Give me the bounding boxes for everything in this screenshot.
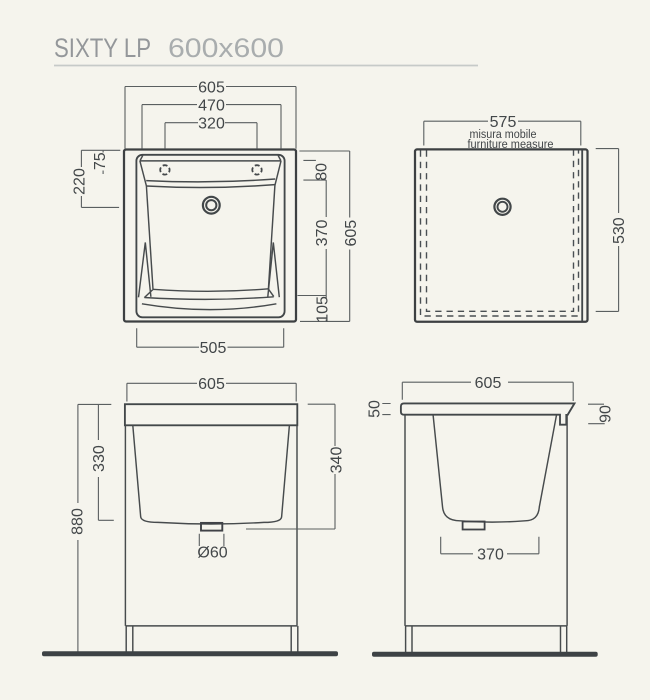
svg-text:320: 320 xyxy=(198,116,225,133)
svg-text:605: 605 xyxy=(343,220,360,247)
svg-text:furniture measure: furniture measure xyxy=(468,139,554,151)
svg-text:80: 80 xyxy=(314,163,331,181)
svg-text:Ø60: Ø60 xyxy=(197,545,227,562)
svg-text:370: 370 xyxy=(477,547,504,564)
svg-text:605: 605 xyxy=(198,79,225,96)
svg-text:470: 470 xyxy=(198,97,225,114)
svg-text:600x600: 600x600 xyxy=(168,33,284,63)
svg-text:370: 370 xyxy=(314,220,331,247)
svg-text:880: 880 xyxy=(70,508,87,535)
svg-text:340: 340 xyxy=(328,447,345,474)
svg-text:90: 90 xyxy=(597,405,614,423)
svg-text:505: 505 xyxy=(200,340,227,357)
svg-text:SIXTY LP: SIXTY LP xyxy=(54,33,151,63)
svg-text:220: 220 xyxy=(72,168,89,195)
svg-text:75: 75 xyxy=(92,152,109,170)
svg-text:530: 530 xyxy=(611,217,628,244)
svg-text:105: 105 xyxy=(315,296,332,323)
svg-text:605: 605 xyxy=(198,376,225,393)
svg-text:50: 50 xyxy=(367,400,384,418)
svg-text:605: 605 xyxy=(475,375,502,392)
svg-text:330: 330 xyxy=(91,445,108,472)
